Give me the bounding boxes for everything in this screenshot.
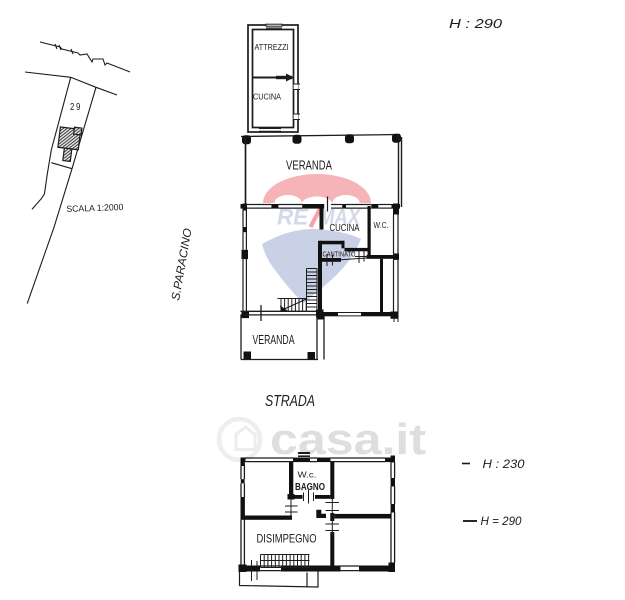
svg-text:W.c.: W.c. bbox=[298, 471, 317, 480]
svg-text:DISIMPEGNO: DISIMPEGNO bbox=[257, 532, 317, 546]
svg-text:29: 29 bbox=[70, 102, 82, 113]
svg-text:W.C.: W.C. bbox=[374, 221, 389, 230]
svg-text:SCALA 1:2000: SCALA 1:2000 bbox=[66, 202, 123, 214]
svg-text:casa.it: casa.it bbox=[270, 415, 426, 464]
svg-text:BAGNO: BAGNO bbox=[295, 481, 325, 493]
svg-text:VERANDA: VERANDA bbox=[286, 159, 332, 173]
svg-text:CUCINA: CUCINA bbox=[330, 223, 360, 234]
svg-text:ATTREZZI: ATTREZZI bbox=[255, 42, 289, 52]
svg-text:CUCINA: CUCINA bbox=[253, 92, 281, 102]
svg-text:STRADA: STRADA bbox=[265, 393, 315, 410]
svg-text:H = 290: H = 290 bbox=[481, 514, 522, 528]
svg-text:CANTINATO: CANTINATO bbox=[323, 252, 356, 259]
svg-text:H : 290: H : 290 bbox=[449, 17, 502, 31]
svg-text:VERANDA: VERANDA bbox=[253, 333, 295, 347]
svg-text:H : 230: H : 230 bbox=[483, 457, 525, 471]
